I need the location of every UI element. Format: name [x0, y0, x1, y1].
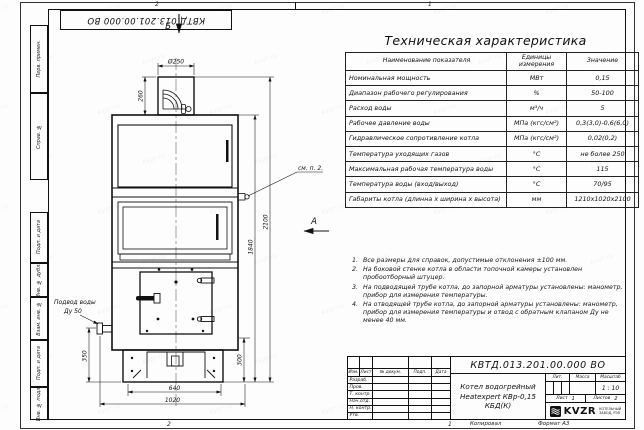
side-label: Подп. и дата [36, 346, 42, 380]
middle-panel-inner [123, 207, 227, 249]
empty-cell [432, 357, 450, 368]
copied-by-label: Копировал [470, 421, 501, 427]
see-note-label: см. п. 2. [298, 165, 323, 172]
empty-cell [409, 399, 432, 405]
spec-row: Максимальная рабочая температура воды°С1… [346, 162, 639, 177]
empty-cell [373, 391, 409, 397]
boiler-drawing: Ø250 260 350 300 1840 2100 640 1020 Б А … [48, 9, 345, 420]
lit-label: Лит. [546, 374, 570, 381]
spec-row: Температура уходящих газов°Сне более 250 [346, 146, 639, 161]
company-logo: KVZR КОТЕЛЬНЫЙ ЗАВОД, РЭП [546, 403, 625, 419]
empty-cell [409, 413, 432, 419]
col-podp: Подп. [409, 369, 432, 376]
spec-table: Наименование показателя Единицы измерени… [345, 52, 639, 208]
spec-row: Габариты котла (длинна х ширина х высота… [346, 192, 639, 207]
dim-body-h: 1840 [248, 239, 255, 254]
dimension-texts: Ø250 260 350 300 1840 2100 640 1020 Б А … [54, 22, 323, 404]
note-text: Все размеры для справок, допустимые откл… [363, 257, 567, 265]
side-box-perv-primen: Перв. примен. [30, 25, 48, 93]
watermark-text: kvzr.ru [0, 402, 9, 417]
sig-row: Н. контр. [348, 406, 450, 413]
product-name: Котел водогрейный Heatexpert КВр-0,15 КБ… [451, 374, 546, 419]
col-data: Дата [432, 369, 450, 376]
col-list: Лист [360, 369, 373, 376]
spec-cell: 70/95 [567, 177, 639, 192]
ash-hatch-inner [172, 356, 180, 366]
lit-mass-scale-values: 1 : 10 [546, 382, 625, 395]
title-block-change-table: Изм. Лист № докум. Подп. Дата Разраб. Пр… [348, 357, 451, 419]
note-number: 2. [352, 266, 363, 282]
drawing-sheet: kvzr.rukvzr.rukvzr.rukvzr.rukvzr.rukvzr.… [0, 0, 644, 430]
empty-cell [409, 357, 432, 368]
note-text: На отводящей трубе котла, до запорной ар… [363, 301, 626, 326]
empty-cell [373, 413, 409, 419]
watermark-text: kvzr.ru [0, 2, 9, 17]
side-label: Подп. и дата [36, 220, 42, 254]
spec-cell: Диапазон рабочего регулирования [346, 86, 507, 101]
spec-header-name: Наименование показателя [346, 53, 507, 71]
mass-value [570, 382, 596, 394]
watermark-text: kvzr.ru [0, 202, 9, 217]
watermark-text: kvzr.ru [0, 102, 9, 117]
sheet-label: Лист [556, 396, 567, 401]
sig-row: Разраб. [348, 377, 450, 384]
sig-row: Т. контр. [348, 391, 450, 398]
spec-cell: мм [507, 192, 567, 207]
mass-label: Масса [570, 374, 596, 381]
scale-value: 1 : 10 [596, 382, 625, 394]
side-box-inv-podl: Инв. № подл. [30, 387, 48, 420]
spec-cell: МВт [507, 71, 567, 86]
boiler-shell [112, 115, 238, 350]
empty-cell [373, 406, 409, 412]
dim-base-h: 300 [237, 354, 244, 366]
side-label: Справ. № [36, 124, 42, 149]
sheets-label: Листов [594, 396, 611, 401]
dim-opening-w: 640 [169, 385, 181, 392]
note-item: 4.На отводящей трубе котла, до запорной … [352, 301, 626, 326]
dim-overall-h: 2100 [263, 214, 270, 229]
middle-damper-handle [216, 214, 219, 240]
lit-cells [546, 382, 570, 394]
note-number: 1. [352, 257, 363, 265]
empty-cell [409, 391, 432, 397]
elbow-pipe [163, 90, 191, 114]
base-bolts [131, 357, 215, 372]
view-b-label: Б [165, 22, 171, 32]
spec-header-units: Единицы измерения [507, 53, 567, 71]
logo-subtext: КОТЕЛЬНЫЙ ЗАВОД, РЭП [599, 407, 621, 415]
dim-overall-w: 1020 [165, 397, 180, 404]
side-box-sprav-no: Справ. № [30, 93, 48, 180]
sig-label: Разраб. [348, 377, 373, 383]
note-item: 2.На боковой стенке котла в области топо… [352, 266, 626, 282]
spec-cell: °С [507, 162, 567, 177]
spec-cell: Максимальная рабочая температура воды [346, 162, 507, 177]
format-label: Формат А3 [538, 421, 569, 427]
note-number: 4. [352, 301, 363, 326]
spec-cell: 50-100 [567, 86, 639, 101]
sig-row: Пров. [348, 384, 450, 391]
col-izm: Изм. [348, 369, 360, 376]
spec-header-row: Наименование показателя Единицы измерени… [346, 53, 639, 71]
side-label: Взам. инв. № [36, 301, 42, 336]
empty-cell [432, 384, 450, 390]
sheets-cell: Листов 2 [586, 395, 625, 402]
spec-cell: 1210х1020х2100 [567, 192, 639, 207]
empty-cell [373, 377, 409, 383]
empty-cell [373, 399, 409, 405]
note-number: 3. [352, 284, 363, 300]
empty-cell [348, 357, 360, 368]
side-label: Инв. № подл. [36, 386, 42, 421]
empty-cell [409, 406, 432, 412]
view-a-label: А [310, 217, 317, 227]
water-inlet-pipe [97, 323, 112, 334]
side-label: Инв. № дубл. [36, 263, 42, 298]
lit-mass-scale-header: Лит. Масса Масштаб [546, 374, 625, 382]
spec-row: Рабочее давление водыМПа (кгс/см²)0,3(3,… [346, 116, 639, 131]
dim-chimney-dia: Ø250 [167, 59, 184, 66]
boiler-body-geometry [97, 77, 249, 382]
middle-panel [118, 202, 232, 254]
empty-cell [432, 413, 450, 419]
sig-label: Нач.отд. [348, 399, 373, 405]
sig-row: Нач.отд. [348, 399, 450, 406]
spec-cell: °С [507, 177, 567, 192]
spec-cell: Температура воды (вход/выход) [346, 177, 507, 192]
spec-cell: 0,02(0,2) [567, 131, 639, 146]
spec-cell: Номинальная мощность [346, 71, 507, 86]
watermark-text: kvzr.ru [0, 302, 9, 317]
water-inlet-label-1: Подвод воды [54, 299, 96, 306]
product-name-line2: Heatexpert КВр-0,15 КБД(К) [451, 392, 545, 411]
spec-row: Расход водым³/ч5 [346, 101, 639, 116]
spec-cell: 0,3(3,0)-0,6(6,0) [567, 116, 639, 131]
dim-chimney-h: 260 [138, 90, 145, 102]
spec-cell: Рабочее давление воды [346, 116, 507, 131]
spec-cell: 115 [567, 162, 639, 177]
spec-cell: Гидравлическое сопротивление котла [346, 131, 507, 146]
title-block-right: КВТД.013.201.00.000 ВО Котел водогрейный… [451, 357, 625, 419]
empty-cell [373, 357, 409, 368]
sheets-value: 2 [614, 396, 617, 402]
logo-text: KVZR [564, 406, 596, 417]
col-dokum: № докум. [373, 369, 409, 376]
side-box-podp-data-1: Подп. и дата [30, 212, 48, 263]
spec-header-value: Значение [567, 53, 639, 71]
change-empty-row [348, 357, 450, 369]
sig-row: Утв. [348, 413, 450, 419]
empty-cell [360, 357, 373, 368]
upper-panel [118, 125, 232, 187]
empty-cell [409, 384, 432, 390]
zone-number-bottom-left: 2 [167, 421, 171, 428]
empty-cell [432, 406, 450, 412]
title-block: Изм. Лист № докум. Подп. Дата Разраб. Пр… [347, 356, 626, 420]
sheet-row: Лист 1 Листов 2 [546, 395, 625, 403]
note-item: 3.На подводящей трубе котла, до запорной… [352, 284, 626, 300]
sheet-cell: Лист 1 [546, 395, 586, 402]
kvzr-logo-icon [550, 406, 561, 417]
water-inlet-label-2: Ду 50 [63, 308, 82, 315]
ash-hatch [167, 352, 183, 366]
side-box-vzam-inv: Взам. инв. № [30, 297, 48, 340]
tray [120, 254, 230, 260]
zone-divider-tick [295, 2, 296, 9]
note-text: На подводящей трубе котла, до запорной а… [363, 284, 626, 300]
doc-number: КВТД.013.201.00.000 ВО [451, 357, 625, 374]
sig-label: Утв. [348, 413, 373, 419]
upper-damper-handle [226, 140, 229, 162]
logo-sub-line2: ЗАВОД, РЭП [599, 411, 621, 415]
notes-list: 1.Все размеры для справок, допустимые от… [352, 257, 626, 326]
empty-cell [373, 384, 409, 390]
spec-cell: Габариты котла (длинна х ширина х высота… [346, 192, 507, 207]
zone-number-top-left: 2 [155, 1, 159, 8]
spec-cell: °С [507, 146, 567, 161]
sig-label: Т. контр. [348, 391, 373, 397]
empty-cell [432, 377, 450, 383]
spec-row: Диапазон рабочего регулирования%50-100 [346, 86, 639, 101]
spec-cell: не более 250 [567, 146, 639, 161]
sampling-fitting [238, 194, 249, 201]
spec-cell: МПа (кгс/см²) [507, 131, 567, 146]
note-text: На боковой стенке котла в области топочн… [363, 266, 626, 282]
side-label: Перв. примен. [36, 40, 42, 78]
empty-cell [432, 391, 450, 397]
spec-cell: 0,15 [567, 71, 639, 86]
empty-cell [432, 399, 450, 405]
spec-cell: Температура уходящих газов [346, 146, 507, 161]
spec-cell: % [507, 86, 567, 101]
spec-row: Гидравлическое сопротивление котлаМПа (к… [346, 131, 639, 146]
zone-number-bottom-right: 1 [448, 421, 452, 428]
zone-number-top-right: 1 [428, 1, 432, 8]
product-name-line1: Котел водогрейный [460, 382, 535, 391]
side-box-podp-data-2: Подп. и дата [30, 340, 48, 387]
spec-cell: 5 [567, 101, 639, 116]
spec-table-title: Техническая характеристика [345, 33, 626, 48]
side-box-inv-dubl: Инв. № дубл. [30, 263, 48, 297]
note-item: 1.Все размеры для справок, допустимые от… [352, 257, 626, 265]
scale-label: Масштаб [596, 374, 625, 381]
spec-cell: Расход воды [346, 101, 507, 116]
dimension-lines [80, 14, 329, 407]
dim-inlet-h: 350 [82, 350, 89, 362]
sheet-value: 1 [572, 396, 575, 402]
spec-row: Номинальная мощностьМВт0,15 [346, 71, 639, 86]
sig-label: Н. контр. [348, 406, 373, 412]
empty-cell [409, 377, 432, 383]
spec-cell: МПа (кгс/см²) [507, 116, 567, 131]
spec-row: Температура воды (вход/выход)°С70/95 [346, 177, 639, 192]
spec-cell: м³/ч [507, 101, 567, 116]
sig-label: Пров. [348, 384, 373, 390]
change-header-row: Изм. Лист № докум. Подп. Дата [348, 369, 450, 377]
